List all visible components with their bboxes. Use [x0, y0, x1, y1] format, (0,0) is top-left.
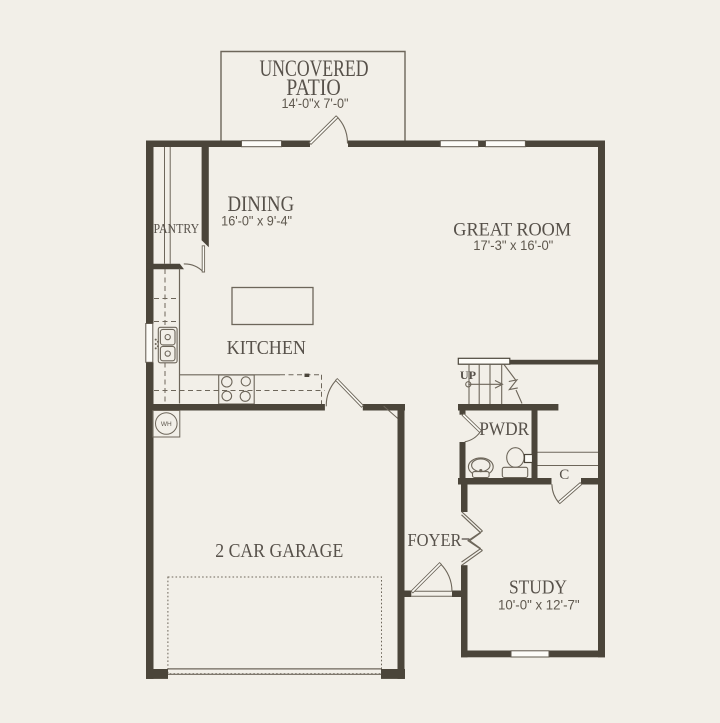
svg-text:2 CAR GARAGE: 2 CAR GARAGE [215, 540, 343, 562]
svg-text:FOYER: FOYER [408, 530, 462, 550]
svg-text:C: C [559, 467, 569, 483]
svg-text:PANTRY: PANTRY [153, 222, 199, 237]
svg-text:WH: WH [161, 421, 172, 428]
svg-text:PWDR: PWDR [479, 419, 529, 440]
svg-text:16'-0" x 9'-4": 16'-0" x 9'-4" [221, 212, 292, 228]
svg-text:UP: UP [460, 368, 476, 382]
svg-text:STUDY: STUDY [509, 576, 567, 598]
svg-text:14'-0"x 7'-0": 14'-0"x 7'-0" [282, 95, 349, 111]
svg-text:10'-0" x 12'-7": 10'-0" x 12'-7" [498, 596, 580, 612]
svg-text:KITCHEN: KITCHEN [227, 337, 306, 359]
svg-text:17'-3" x 16'-0": 17'-3" x 16'-0" [473, 237, 553, 253]
